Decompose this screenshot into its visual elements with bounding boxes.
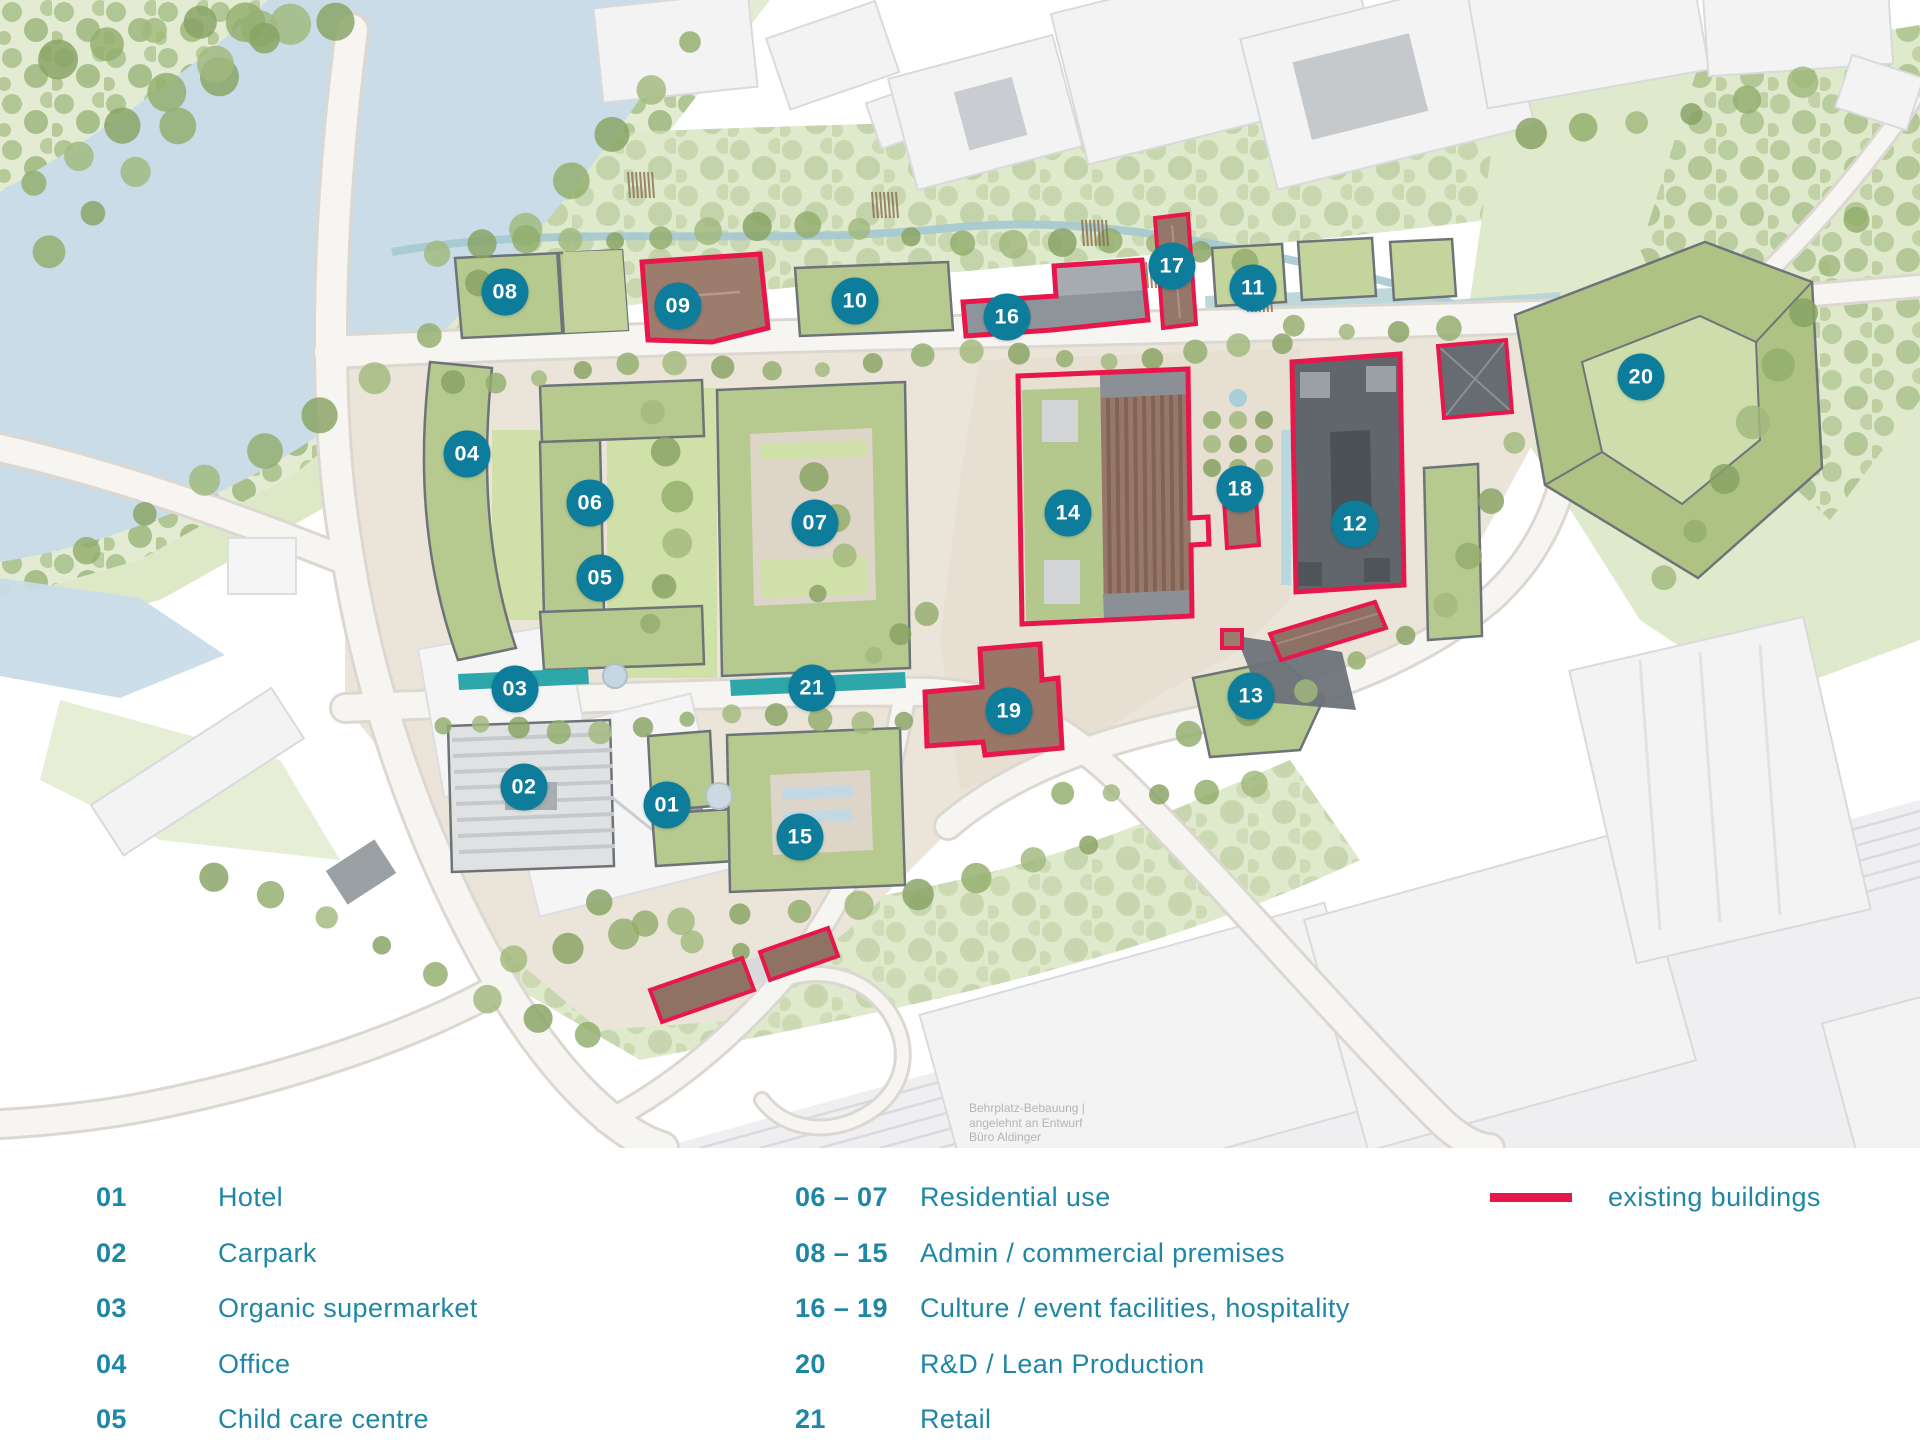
legend-label: R&D / Lean Production <box>920 1347 1205 1381</box>
attribution-line: angelehnt an Entwurf <box>969 1116 1085 1131</box>
building-marker-08: 08 <box>482 269 529 316</box>
map-attribution: Behrplatz-Bebauung | angelehnt an Entwur… <box>969 1101 1085 1145</box>
legend-row: 02 Carpark <box>96 1236 478 1270</box>
legend-row: 04 Office <box>96 1347 478 1381</box>
legend-label: Office <box>218 1347 290 1381</box>
legend-row: 16 – 19 Culture / event facilities, hosp… <box>795 1291 1350 1325</box>
building-marker-15: 15 <box>777 814 824 861</box>
building-marker-12: 12 <box>1332 501 1379 548</box>
legend-number: 21 <box>795 1402 920 1436</box>
legend-number: 03 <box>96 1291 218 1325</box>
building-marker-11: 11 <box>1230 265 1277 312</box>
existing-buildings-swatch <box>1490 1193 1572 1202</box>
existing-buildings-label: existing buildings <box>1608 1182 1821 1213</box>
site-plan-page: 0102030405060708091011121314151617181920… <box>0 0 1920 1440</box>
building-marker-21: 21 <box>789 665 836 712</box>
legend-number: 20 <box>795 1347 920 1381</box>
building-marker-03: 03 <box>492 666 539 713</box>
legend-number: 16 – 19 <box>795 1291 920 1325</box>
building-marker-09: 09 <box>655 283 702 330</box>
building-marker-06: 06 <box>567 480 614 527</box>
legend-row: 08 – 15 Admin / commercial premises <box>795 1236 1350 1270</box>
legend-row: 21 Retail <box>795 1402 1350 1436</box>
building-marker-13: 13 <box>1228 673 1275 720</box>
legend-number: 02 <box>96 1236 218 1270</box>
building-marker-18: 18 <box>1217 466 1264 513</box>
building-marker-17: 17 <box>1149 243 1196 290</box>
legend-number: 06 – 07 <box>795 1180 920 1214</box>
legend-label: Organic supermarket <box>218 1291 478 1325</box>
legend-column-1: 01 Hotel 02 Carpark 03 Organic supermark… <box>96 1180 478 1440</box>
legend-number: 04 <box>96 1347 218 1381</box>
building-marker-10: 10 <box>832 278 879 325</box>
building-marker-19: 19 <box>986 688 1033 735</box>
legend-row: 03 Organic supermarket <box>96 1291 478 1325</box>
legend-number: 08 – 15 <box>795 1236 920 1270</box>
building-marker-14: 14 <box>1045 490 1092 537</box>
legend-label: Admin / commercial premises <box>920 1236 1285 1270</box>
building-marker-07: 07 <box>792 500 839 547</box>
building-marker-01: 01 <box>644 782 691 829</box>
legend-label: Residential use <box>920 1180 1111 1214</box>
building-marker-16: 16 <box>984 294 1031 341</box>
building-marker-04: 04 <box>444 431 491 478</box>
legend-label: Child care centre <box>218 1402 429 1436</box>
legend-label: Retail <box>920 1402 991 1436</box>
site-plan-map: 0102030405060708091011121314151617181920… <box>0 0 1920 1148</box>
legend-row: 20 R&D / Lean Production <box>795 1347 1350 1381</box>
building-marker-20: 20 <box>1618 354 1665 401</box>
legend-row: 05 Child care centre <box>96 1402 478 1436</box>
legend-label: Carpark <box>218 1236 317 1270</box>
attribution-line: Büro Aldinger <box>969 1130 1085 1145</box>
building-marker-05: 05 <box>577 555 624 602</box>
legend-label: Hotel <box>218 1180 283 1214</box>
legend-row: 06 – 07 Residential use <box>795 1180 1350 1214</box>
attribution-line: Behrplatz-Bebauung | <box>969 1101 1085 1116</box>
legend-existing: existing buildings <box>1490 1174 1821 1220</box>
legend-label: Culture / event facilities, hospitality <box>920 1291 1350 1325</box>
building-marker-02: 02 <box>501 764 548 811</box>
legend-column-2: 06 – 07 Residential use 08 – 15 Admin / … <box>795 1180 1350 1440</box>
legend-number: 05 <box>96 1402 218 1436</box>
site-plan-artwork <box>0 0 1920 1148</box>
legend-number: 01 <box>96 1180 218 1214</box>
legend-row: 01 Hotel <box>96 1180 478 1214</box>
